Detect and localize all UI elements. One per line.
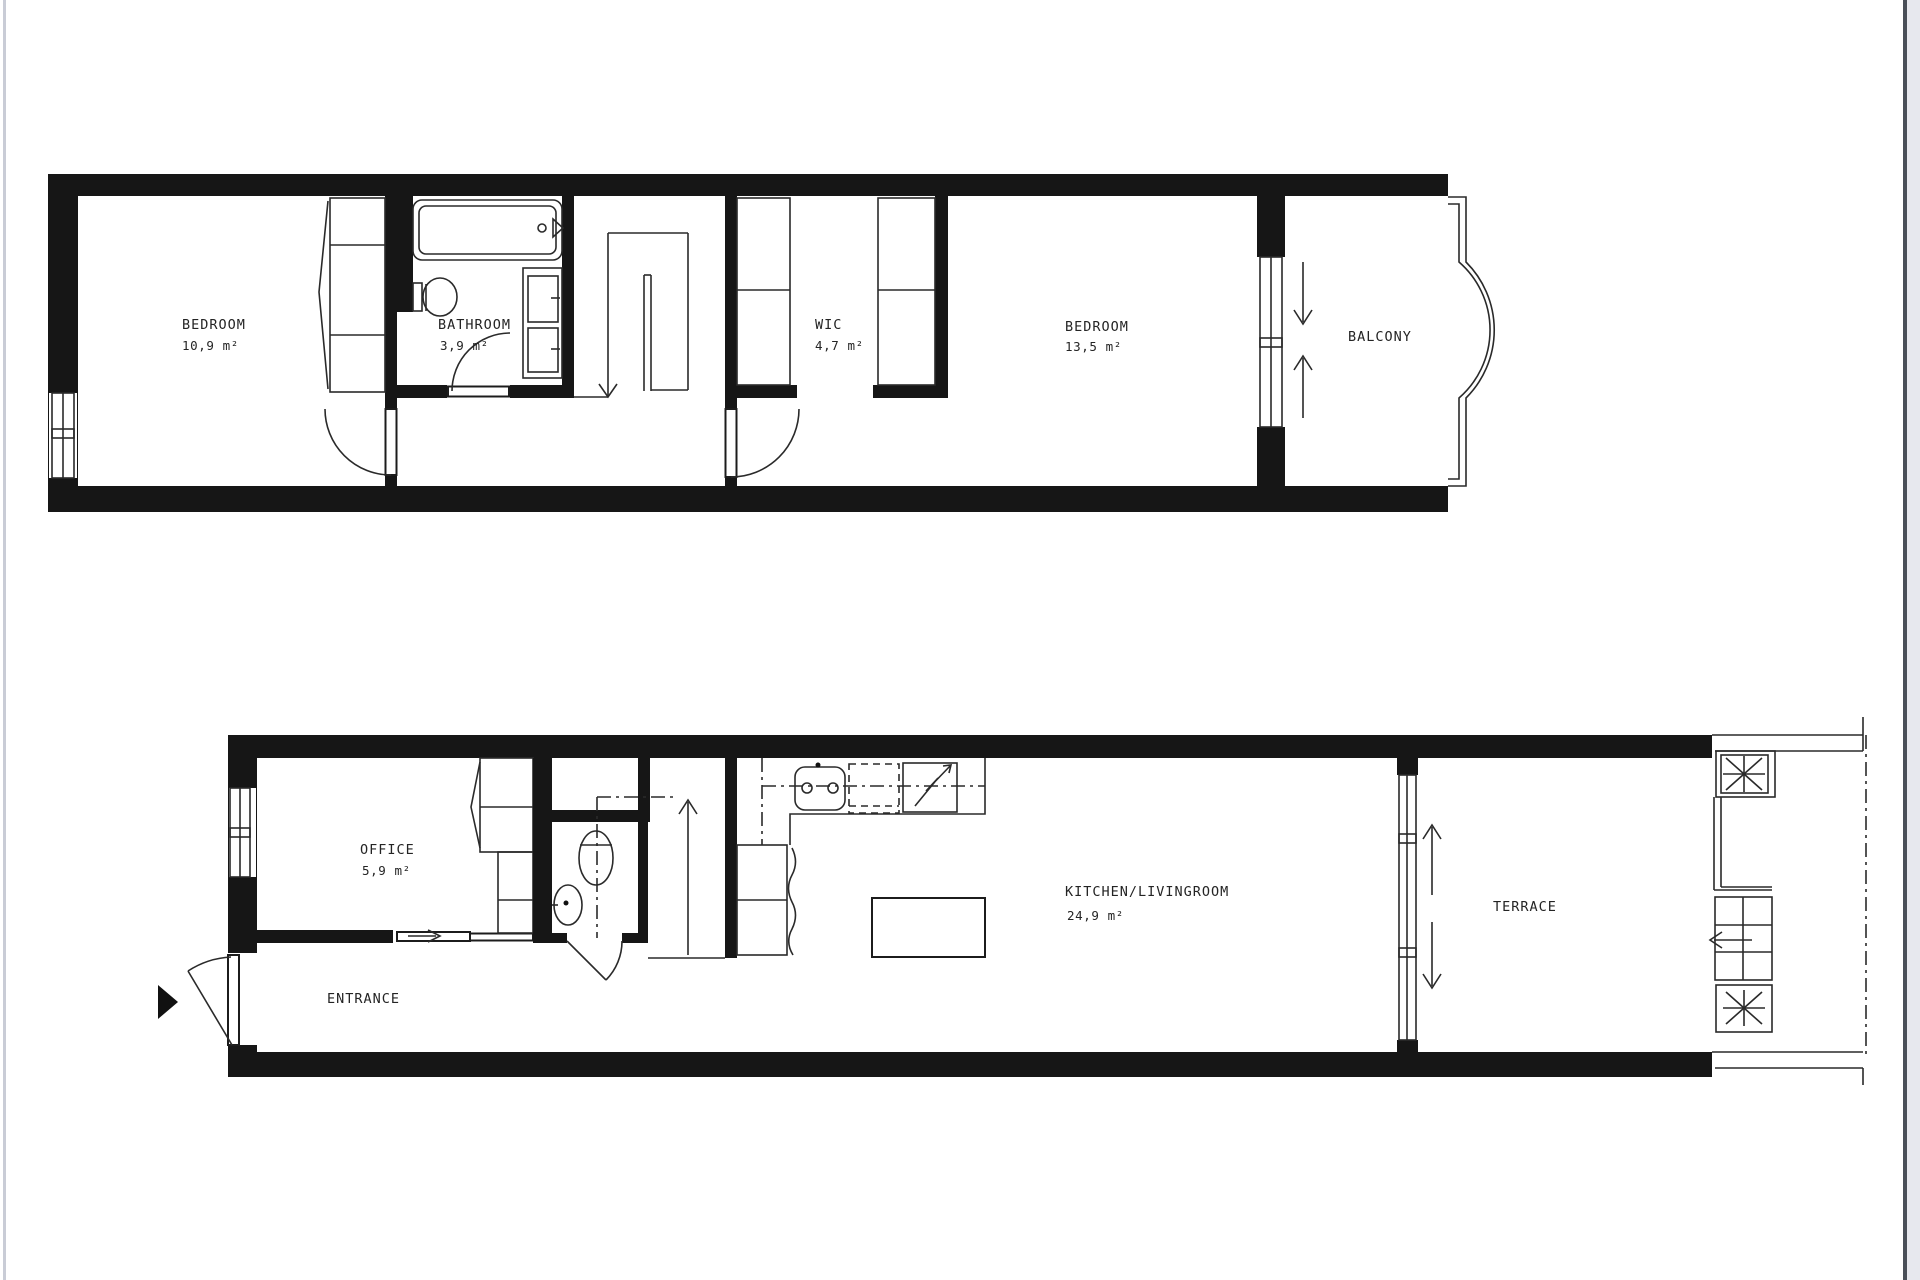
faucet-icon xyxy=(816,763,821,768)
kitchen-tall-cabinets xyxy=(737,845,796,955)
lower-bottom-wall xyxy=(228,1052,1712,1077)
wall-bath-stairhall xyxy=(562,196,574,397)
wc-sink xyxy=(552,885,582,925)
office-wardrobe xyxy=(471,758,533,933)
terrace-steps xyxy=(1710,897,1772,980)
kitchen-livingroom-label: KITCHEN/LIVINGROOM xyxy=(1065,884,1229,900)
page-left-edge xyxy=(3,0,6,1280)
bedroom1-window xyxy=(49,393,77,478)
balcony-door-swing-arrows xyxy=(1294,262,1312,418)
kitchen-livingroom-area: 24,9 m² xyxy=(1067,908,1124,923)
bathroom-vanity-sinks xyxy=(523,268,562,378)
balcony-railing xyxy=(1448,197,1494,486)
balcony-label: BALCONY xyxy=(1348,329,1412,345)
bedroom2-door xyxy=(726,409,800,477)
page-right-edge-line xyxy=(1903,0,1907,1280)
office-sliding-door xyxy=(397,930,533,942)
lower-floor-labels: OFFICE 5,9 m² ENTRANCE KITCHEN/LIVINGROO… xyxy=(327,842,1557,1007)
wc-top-wall xyxy=(552,810,640,822)
upper-staircase xyxy=(574,233,688,397)
terrace-retaining-wall xyxy=(1714,797,1772,890)
kitchen-counter xyxy=(790,758,985,845)
bathtub xyxy=(413,200,563,260)
wic-closet-left xyxy=(737,198,790,385)
cabinet-break-line xyxy=(789,848,796,955)
terrace-planter-top xyxy=(1716,751,1775,797)
bedroom2-area: 13,5 m² xyxy=(1065,339,1122,354)
wic-label: WIC xyxy=(815,317,842,333)
balcony-sliding-door xyxy=(1260,257,1282,427)
bedroom1-door xyxy=(325,409,397,475)
lower-floor-plan: OFFICE 5,9 m² ENTRANCE KITCHEN/LIVINGROO… xyxy=(158,717,1866,1085)
office-area: 5,9 m² xyxy=(362,863,411,878)
wall-bed1-bath xyxy=(385,196,397,408)
upper-floor-plan: BEDROOM 10,9 m² BATHROOM 3,9 m² WIC 4,7 … xyxy=(48,174,1494,512)
office-window xyxy=(229,788,256,877)
kitchen-dishwasher xyxy=(849,764,899,813)
bedroom1-label: BEDROOM xyxy=(182,317,246,333)
kitchen-stove xyxy=(903,763,957,812)
bedroom1-wardrobe xyxy=(319,198,385,392)
upper-top-wall xyxy=(48,174,1448,196)
bathroom-label: BATHROOM xyxy=(438,317,511,333)
plant-icon xyxy=(1723,756,1765,792)
bathroom-area: 3,9 m² xyxy=(440,338,489,353)
lower-staircase xyxy=(648,800,725,958)
terrace-boundary xyxy=(1712,717,1866,1085)
terrace-door-swing-arrows xyxy=(1423,825,1441,988)
wic-area: 4,7 m² xyxy=(815,338,864,353)
wall-stairs-kitchen xyxy=(725,758,737,958)
bath-plumbing-wall xyxy=(397,196,413,312)
bathroom-toilet xyxy=(413,278,457,316)
terrace-sliding-door xyxy=(1399,775,1416,1040)
wc-toilet xyxy=(579,831,613,885)
entrance-marker-icon xyxy=(158,985,178,1019)
entrance-label: ENTRANCE xyxy=(327,991,400,1007)
wall-wic-bedroom2 xyxy=(935,196,948,398)
upper-bottom-wall xyxy=(48,486,1448,512)
kitchen-island xyxy=(872,898,985,957)
lower-top-wall xyxy=(228,735,1712,758)
plant-icon xyxy=(1723,990,1765,1026)
office-label: OFFICE xyxy=(360,842,415,858)
bedroom1-area: 10,9 m² xyxy=(182,338,239,353)
floorplan-canvas: BEDROOM 10,9 m² BATHROOM 3,9 m² WIC 4,7 … xyxy=(0,0,1920,1280)
page-right-edge-band xyxy=(1907,0,1920,1280)
terrace-planter-bottom xyxy=(1716,985,1772,1032)
bedroom2-label: BEDROOM xyxy=(1065,319,1129,335)
wall-stairhall-wic xyxy=(725,196,737,408)
wall-office-wc xyxy=(533,758,552,943)
entrance-door xyxy=(188,953,257,1045)
terrace-label: TERRACE xyxy=(1493,899,1557,915)
wall-wc-stairs xyxy=(638,822,648,943)
wc-door xyxy=(567,941,622,980)
wic-closet-right xyxy=(878,198,935,385)
